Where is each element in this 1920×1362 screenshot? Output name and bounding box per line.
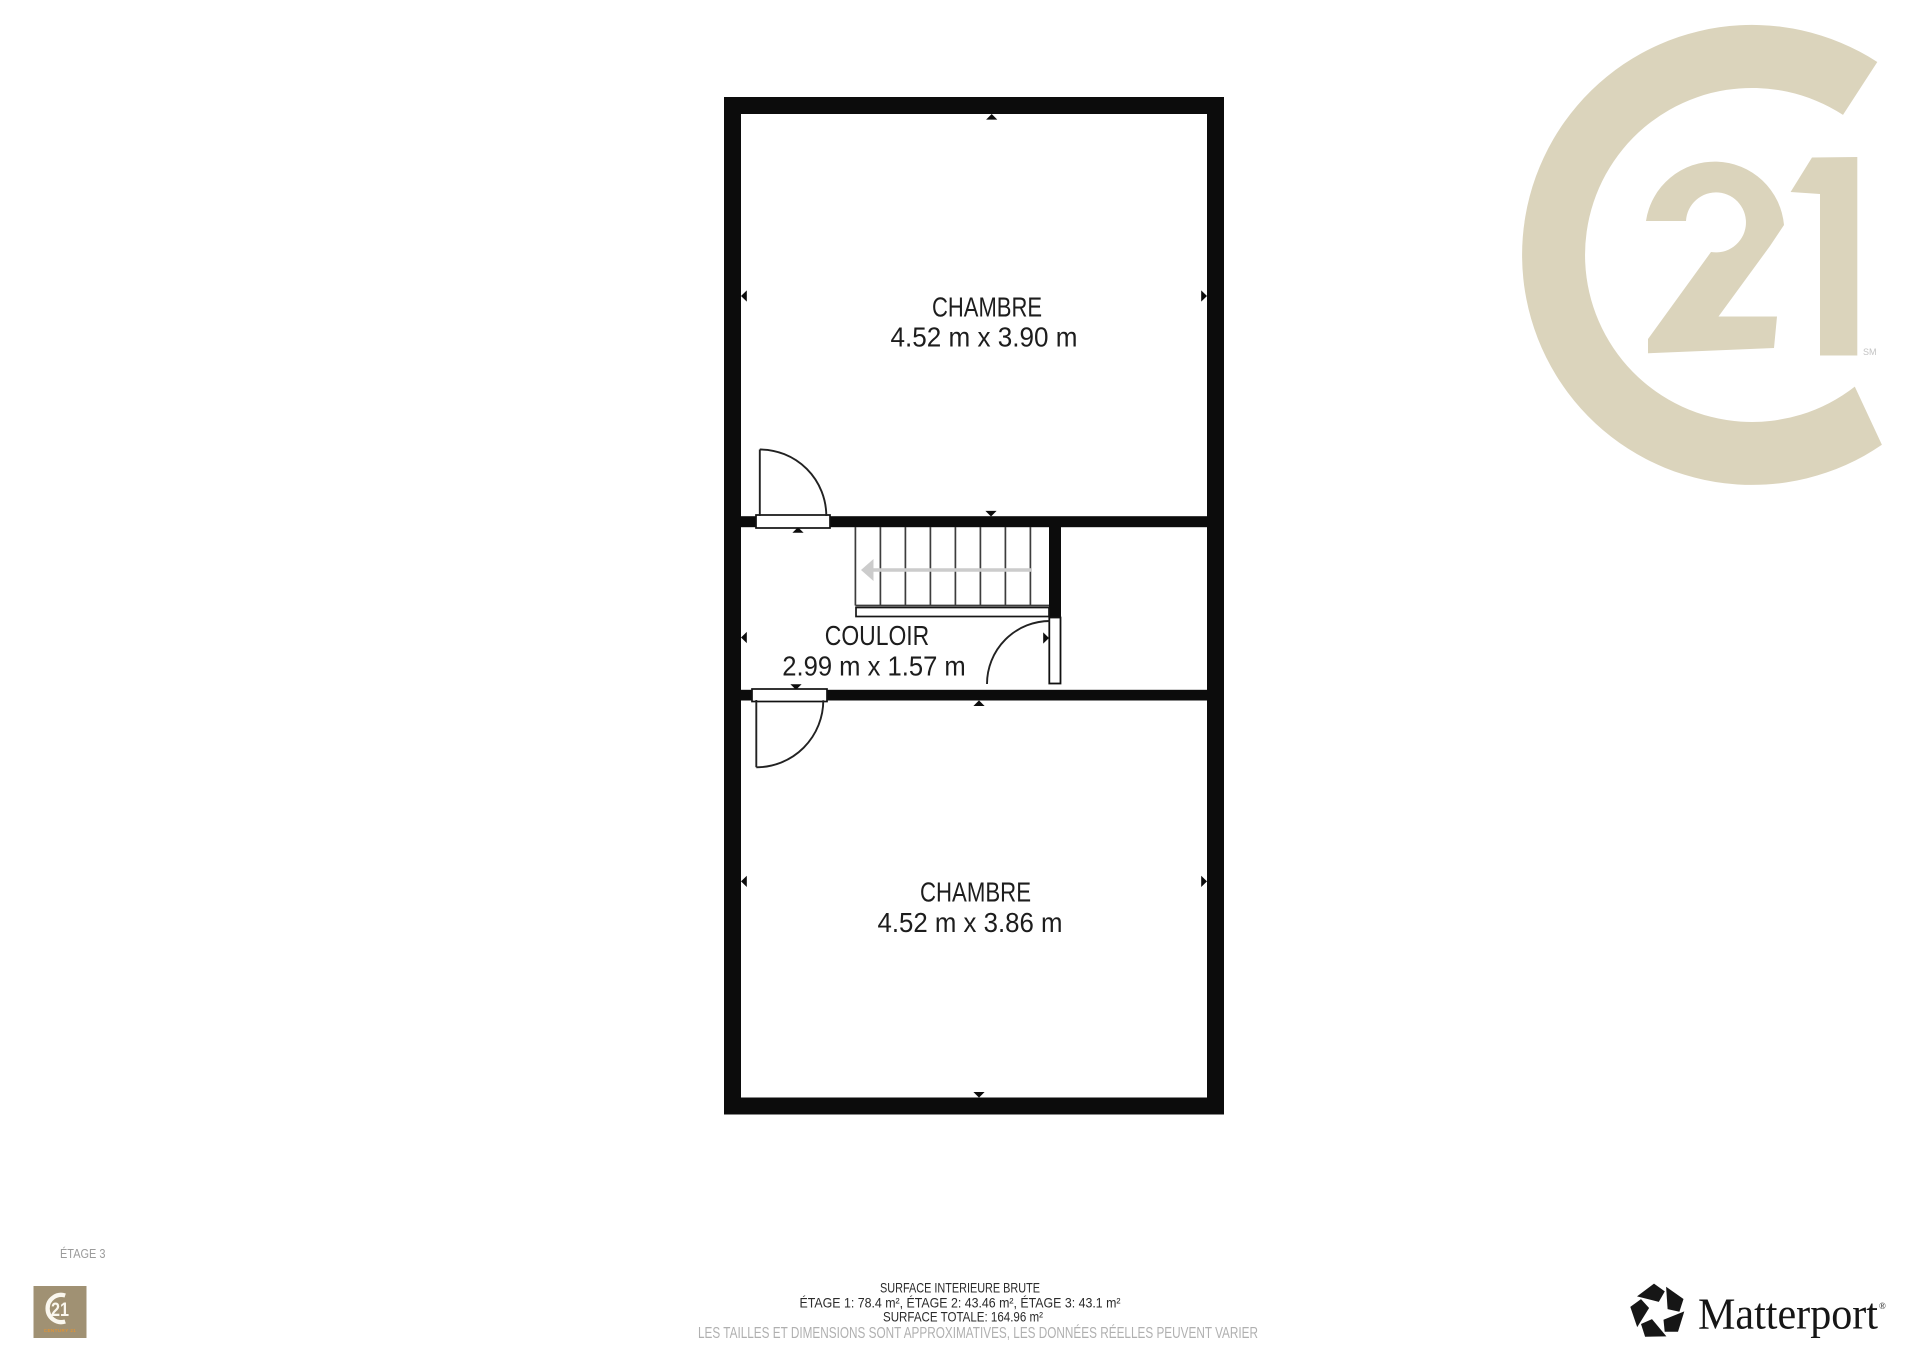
svg-text:SURFACE INTERIEURE BRUTE: SURFACE INTERIEURE BRUTE <box>880 1280 1040 1296</box>
svg-text:COULOIR: COULOIR <box>825 620 930 651</box>
svg-text:CENTURY 21: CENTURY 21 <box>44 1328 77 1333</box>
svg-text:CHAMBRE: CHAMBRE <box>932 292 1042 323</box>
svg-text:SM: SM <box>1863 347 1877 357</box>
svg-text:CHAMBRE: CHAMBRE <box>920 877 1031 908</box>
svg-text:2.99 m x 1.57 m: 2.99 m x 1.57 m <box>782 651 966 682</box>
svg-text:4.52 m x 3.90 m: 4.52 m x 3.90 m <box>891 322 1078 353</box>
svg-text:®: ® <box>1879 1301 1886 1311</box>
svg-text:ÉTAGE 3: ÉTAGE 3 <box>60 1246 106 1261</box>
svg-text:Matterport: Matterport <box>1698 1289 1879 1339</box>
svg-text:SURFACE TOTALE: 164.96 m²: SURFACE TOTALE: 164.96 m² <box>883 1309 1043 1325</box>
svg-text:4.52 m x 3.86 m: 4.52 m x 3.86 m <box>878 907 1063 938</box>
svg-text:LES TAILLES ET DIMENSIONS SONT: LES TAILLES ET DIMENSIONS SONT APPROXIMA… <box>698 1325 1258 1342</box>
svg-text:21: 21 <box>51 1299 69 1321</box>
